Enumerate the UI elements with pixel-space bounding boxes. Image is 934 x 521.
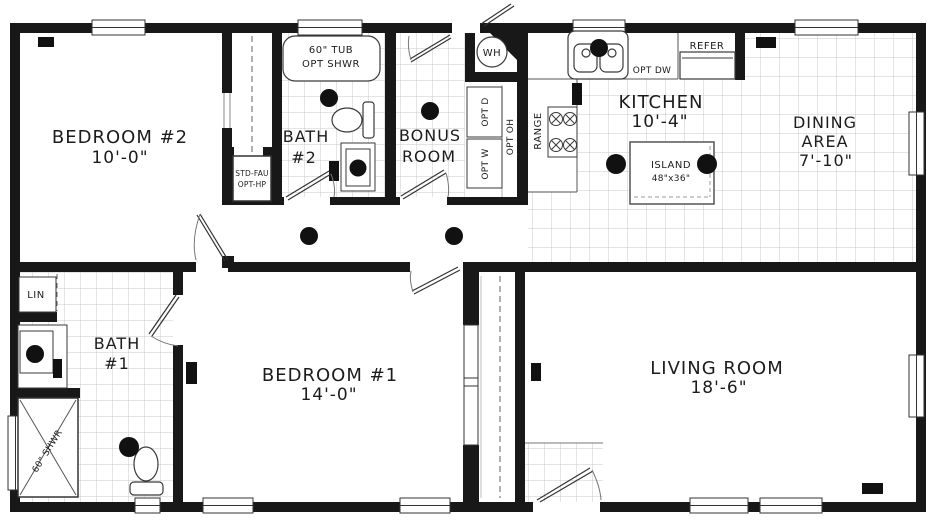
window-bedroom1-bottom-2: [400, 498, 450, 513]
vanity-bath1: [18, 325, 67, 388]
block-bedroom2: [38, 37, 54, 47]
window-bedroom1-east: [464, 325, 478, 445]
room-label-dining-1: DINING: [793, 113, 857, 132]
faucet-block-bath2: [329, 161, 339, 181]
opt-overhead-label: OPT OH: [506, 119, 516, 156]
wall-living-north: [463, 262, 916, 272]
room-label-kitchen: KITCHEN: [619, 92, 704, 113]
island-size-label: 48"x36": [652, 174, 691, 184]
wall-top-left: [10, 23, 452, 33]
wall-furnace-left: [222, 147, 234, 205]
light-hall-2: [445, 227, 463, 245]
window-bedroom1-bottom-1: [203, 498, 253, 513]
light-kitchen-1: [606, 154, 626, 174]
room-dim-bedroom2: 10'-0": [91, 148, 148, 168]
wall-top-right: [480, 23, 926, 33]
door-jamb-bedroom2: [222, 256, 234, 268]
window-living-right: [909, 355, 924, 417]
room-label-bath1: BATH: [94, 334, 140, 353]
room-label-bonus-2: ROOM: [402, 147, 456, 166]
range: [548, 107, 577, 157]
wall-linen-bottom: [17, 312, 57, 322]
wall-bedroom1-east-upper: [463, 272, 479, 325]
window-living-bottom-1: [690, 498, 748, 513]
door-bedroom2: [194, 214, 228, 261]
room-label-dining-2: AREA: [801, 132, 848, 151]
wall-bedroom1-east-lower: [463, 445, 479, 502]
wall-vanity-bottom: [18, 388, 80, 398]
window-bath2-top: [298, 20, 362, 35]
refrigerator-label: REFER: [690, 41, 725, 52]
furnace-label-1: STD-FAU: [235, 169, 268, 178]
room-label-living: LIVING ROOM: [650, 358, 783, 379]
range-label: RANGE: [533, 112, 544, 149]
opt-washer-label: OPT W: [481, 148, 491, 179]
block-dining: [756, 37, 776, 48]
floor-plan: BEDROOM #2 10'-0" BATH #2 BONUS ROOM KIT…: [0, 0, 934, 521]
room-num-bath2: #2: [291, 148, 317, 167]
block-living-south: [862, 483, 883, 494]
wall-hall-north-3: [447, 197, 525, 205]
room-label-bedroom2: BEDROOM #2: [52, 127, 188, 148]
room-dim-dining: 7'-10": [799, 151, 853, 170]
wall-refer-side: [735, 33, 745, 80]
room-label-bath2: BATH: [283, 127, 329, 146]
wall-bath2-bonus: [385, 33, 396, 205]
block-living-west: [531, 363, 541, 381]
room-num-bath1: #1: [104, 354, 130, 373]
wall-bath1-east-upper: [173, 272, 183, 295]
wall-hall-south-2: [228, 262, 410, 272]
kitchen-island: [630, 142, 714, 204]
room-dim-bedroom1: 14'-0": [300, 385, 357, 405]
sink-bath2: [350, 160, 367, 177]
room-dim-living: 18'-6": [690, 378, 747, 398]
furnace-box: [233, 156, 271, 201]
light-kitchen-2: [697, 154, 717, 174]
wall-wh-bottom: [465, 72, 517, 82]
dishwasher-block: [572, 83, 582, 105]
wall-bedroom2-closet-upper: [222, 33, 232, 93]
opt-dishwasher-label: OPT DW: [633, 66, 672, 76]
light-bath2: [320, 89, 338, 107]
door-bedroom1: [410, 267, 460, 294]
wall-kitchen-west: [517, 23, 528, 205]
water-heater-label: WH: [483, 48, 501, 59]
kitchen-faucet: [590, 39, 608, 57]
window-bedroom2-top: [92, 20, 145, 35]
window-dining-top: [795, 20, 858, 35]
faucet-block-bath1: [53, 359, 62, 378]
wall-right: [916, 23, 926, 512]
wall-hall-south-1: [18, 262, 196, 272]
wall-living-west: [515, 262, 525, 502]
window-living-bottom-2: [760, 498, 822, 513]
tub-label-2: OPT SHWR: [302, 59, 360, 70]
light-bonus: [421, 102, 439, 120]
room-label-bedroom1: BEDROOM #1: [262, 365, 398, 386]
light-hall-1: [300, 227, 318, 245]
wall-hall-north-2: [330, 197, 400, 205]
floor-plan-drawing: BEDROOM #2 10'-0" BATH #2 BONUS ROOM KIT…: [0, 0, 934, 521]
island-label: ISLAND: [651, 160, 691, 171]
window-bath1-bottom: [135, 498, 160, 513]
furnace-label-2: OPT-HP: [238, 180, 267, 189]
wall-bath1-east-lower: [173, 345, 183, 502]
opt-dryer-label: OPT D: [481, 97, 491, 126]
room-dim-kitchen: 10'-4": [631, 112, 688, 132]
wall-bottom-left: [10, 502, 533, 512]
tub-label-1: 60" TUB: [309, 45, 353, 56]
kitchen-sink: [568, 31, 628, 79]
sink-bath1: [26, 345, 44, 363]
refrigerator: [680, 52, 735, 79]
room-label-bonus-1: BONUS: [399, 126, 461, 145]
linen-label: LIN: [27, 290, 45, 301]
light-bath1: [119, 437, 139, 457]
block-bedroom1-west: [186, 362, 197, 384]
window-dining-right: [909, 112, 924, 175]
